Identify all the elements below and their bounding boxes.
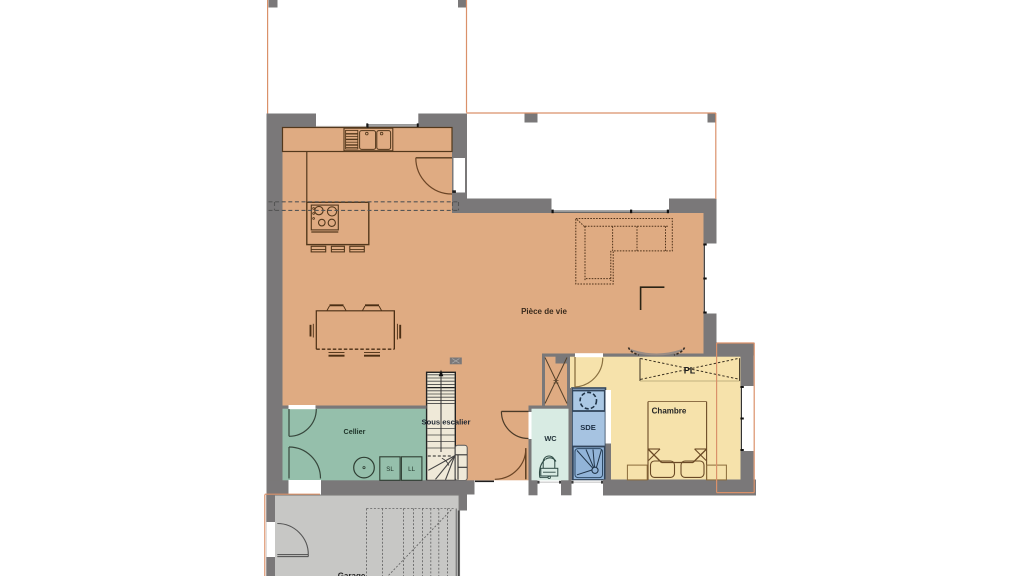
svg-text:PL: PL [684,366,696,376]
svg-text:WC: WC [544,434,557,443]
svg-text:Sous escalier: Sous escalier [422,418,471,427]
svg-text:SL: SL [386,466,394,473]
svg-text:Pièce de vie: Pièce de vie [521,307,567,316]
svg-text:Garage: Garage [338,572,366,576]
svg-text:Chambre: Chambre [652,407,687,416]
svg-text:Cellier: Cellier [344,427,366,436]
svg-text:SDE: SDE [580,423,596,432]
svg-text:LL: LL [408,466,415,473]
